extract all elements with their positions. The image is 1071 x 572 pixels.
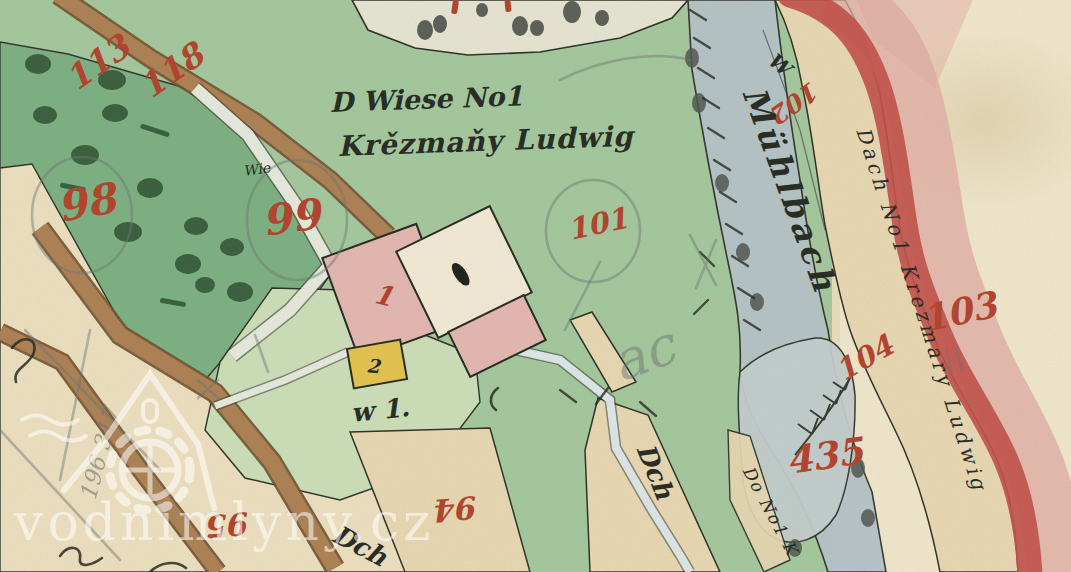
watermark-text: vodnimlyny.cz — [13, 492, 434, 552]
paper-grain-overlay — [0, 0, 1071, 572]
cadastral-map: D Wiese No1 Krězmaňy Ludwig Wie Mühlbach… — [0, 0, 1071, 572]
cadastral-map-canvas: D Wiese No1 Krězmaňy Ludwig Wie Mühlbach… — [0, 0, 1071, 572]
